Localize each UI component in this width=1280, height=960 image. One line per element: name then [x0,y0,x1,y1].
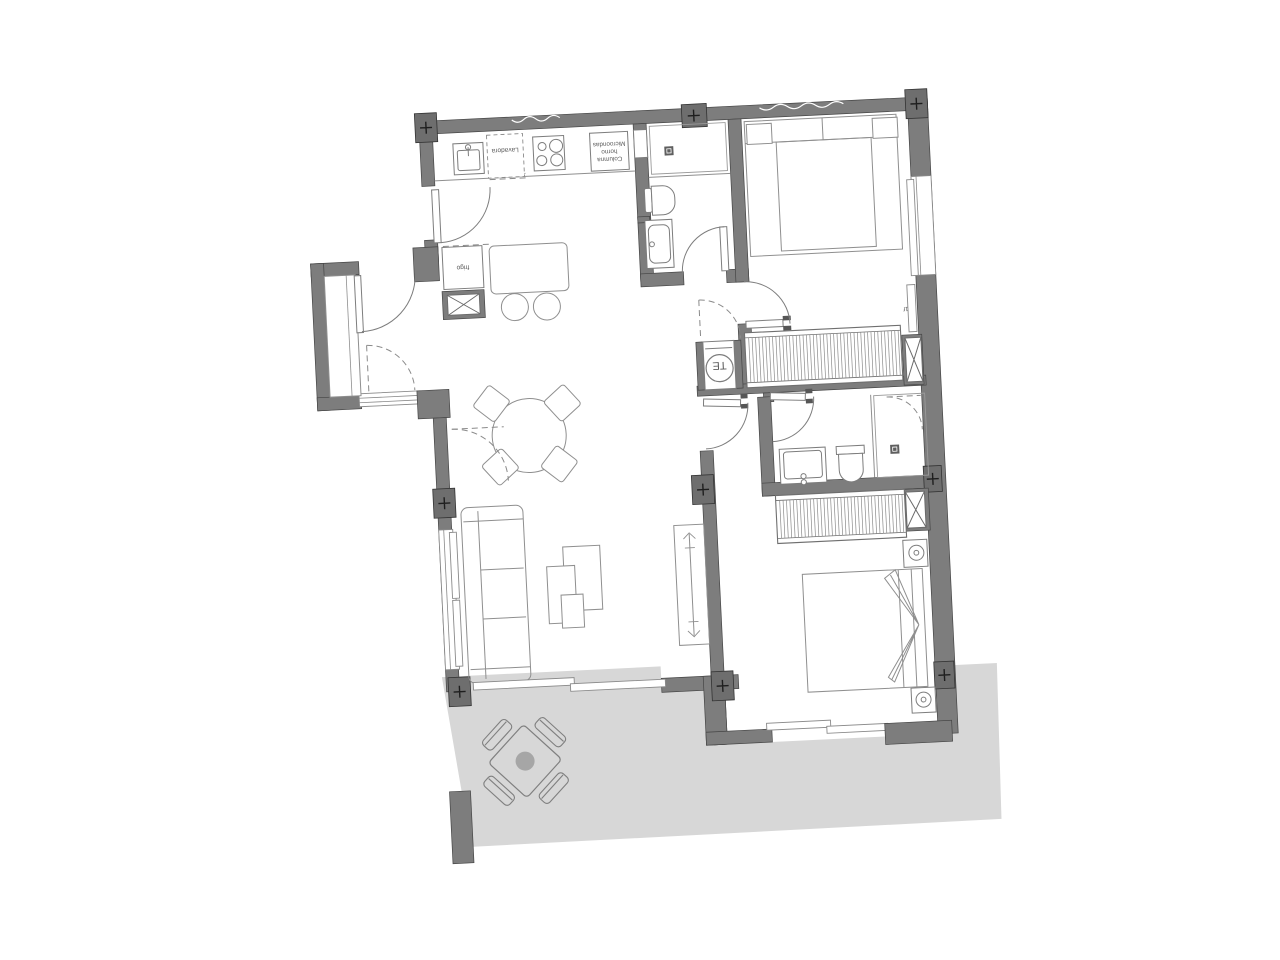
svg-text:Lavadora: Lavadora [491,146,519,154]
svg-text:frigo: frigo [456,263,469,271]
svg-text:TE: TE [712,359,727,372]
svg-text:1f: 1f [903,305,909,311]
